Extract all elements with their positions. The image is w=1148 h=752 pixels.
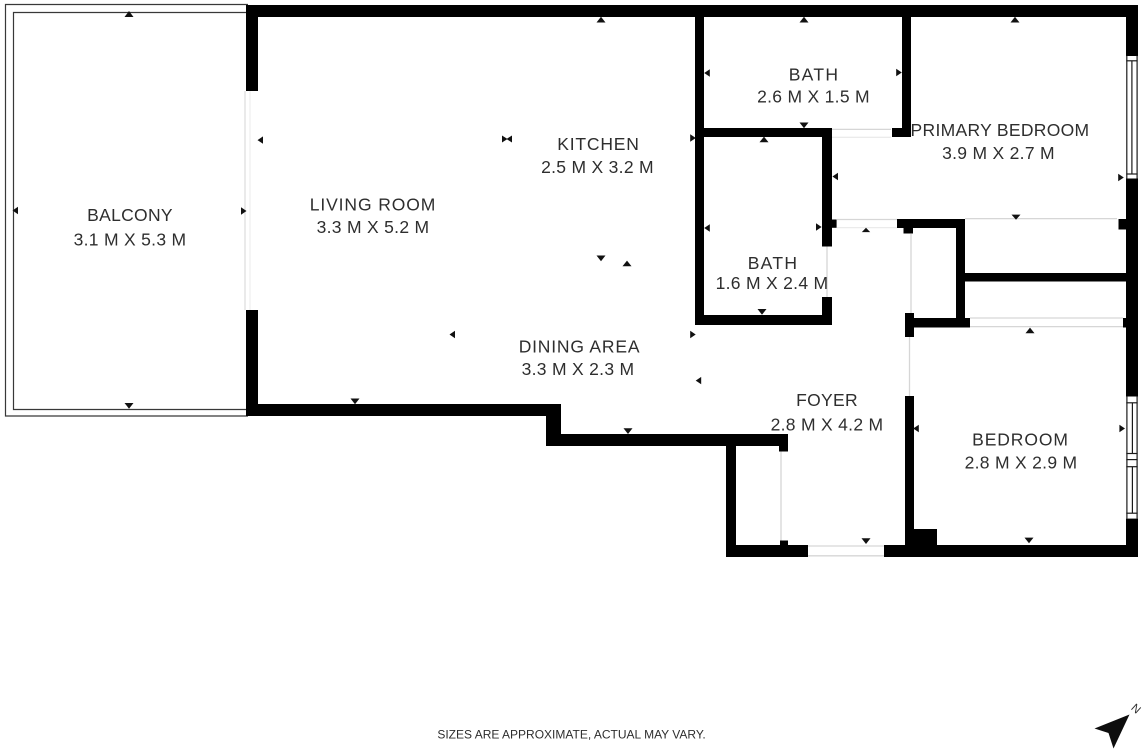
- svg-text:SIZES ARE APPROXIMATE, ACTUAL: SIZES ARE APPROXIMATE, ACTUAL MAY VARY.: [437, 728, 705, 742]
- svg-text:DINING AREA: DINING AREA: [519, 336, 641, 356]
- svg-text:3.3 M X 5.2 M: 3.3 M X 5.2 M: [317, 217, 430, 237]
- svg-text:3.1 M X 5.3 M: 3.1 M X 5.3 M: [74, 230, 187, 250]
- svg-text:3.9 M X 2.7 M: 3.9 M X 2.7 M: [942, 143, 1055, 163]
- svg-text:2.8 M X 4.2 M: 2.8 M X 4.2 M: [771, 415, 884, 435]
- svg-text:LIVING ROOM: LIVING ROOM: [310, 195, 437, 215]
- svg-text:BEDROOM: BEDROOM: [972, 430, 1069, 450]
- svg-text:BATH: BATH: [789, 64, 840, 84]
- svg-text:BATH: BATH: [748, 253, 799, 273]
- svg-text:2.8 M X 2.9 M: 2.8 M X 2.9 M: [965, 453, 1078, 473]
- svg-text:1.6 M X 2.4 M: 1.6 M X 2.4 M: [716, 273, 829, 293]
- svg-text:2.5 M X 3.2 M: 2.5 M X 3.2 M: [541, 157, 654, 177]
- svg-text:KITCHEN: KITCHEN: [557, 134, 639, 154]
- svg-text:PRIMARY BEDROOM: PRIMARY BEDROOM: [911, 120, 1090, 140]
- svg-text:2.6 M X 1.5 M: 2.6 M X 1.5 M: [757, 86, 870, 106]
- svg-text:BALCONY: BALCONY: [87, 205, 173, 225]
- svg-text:FOYER: FOYER: [796, 390, 858, 410]
- svg-text:3.3 M X 2.3 M: 3.3 M X 2.3 M: [522, 359, 635, 379]
